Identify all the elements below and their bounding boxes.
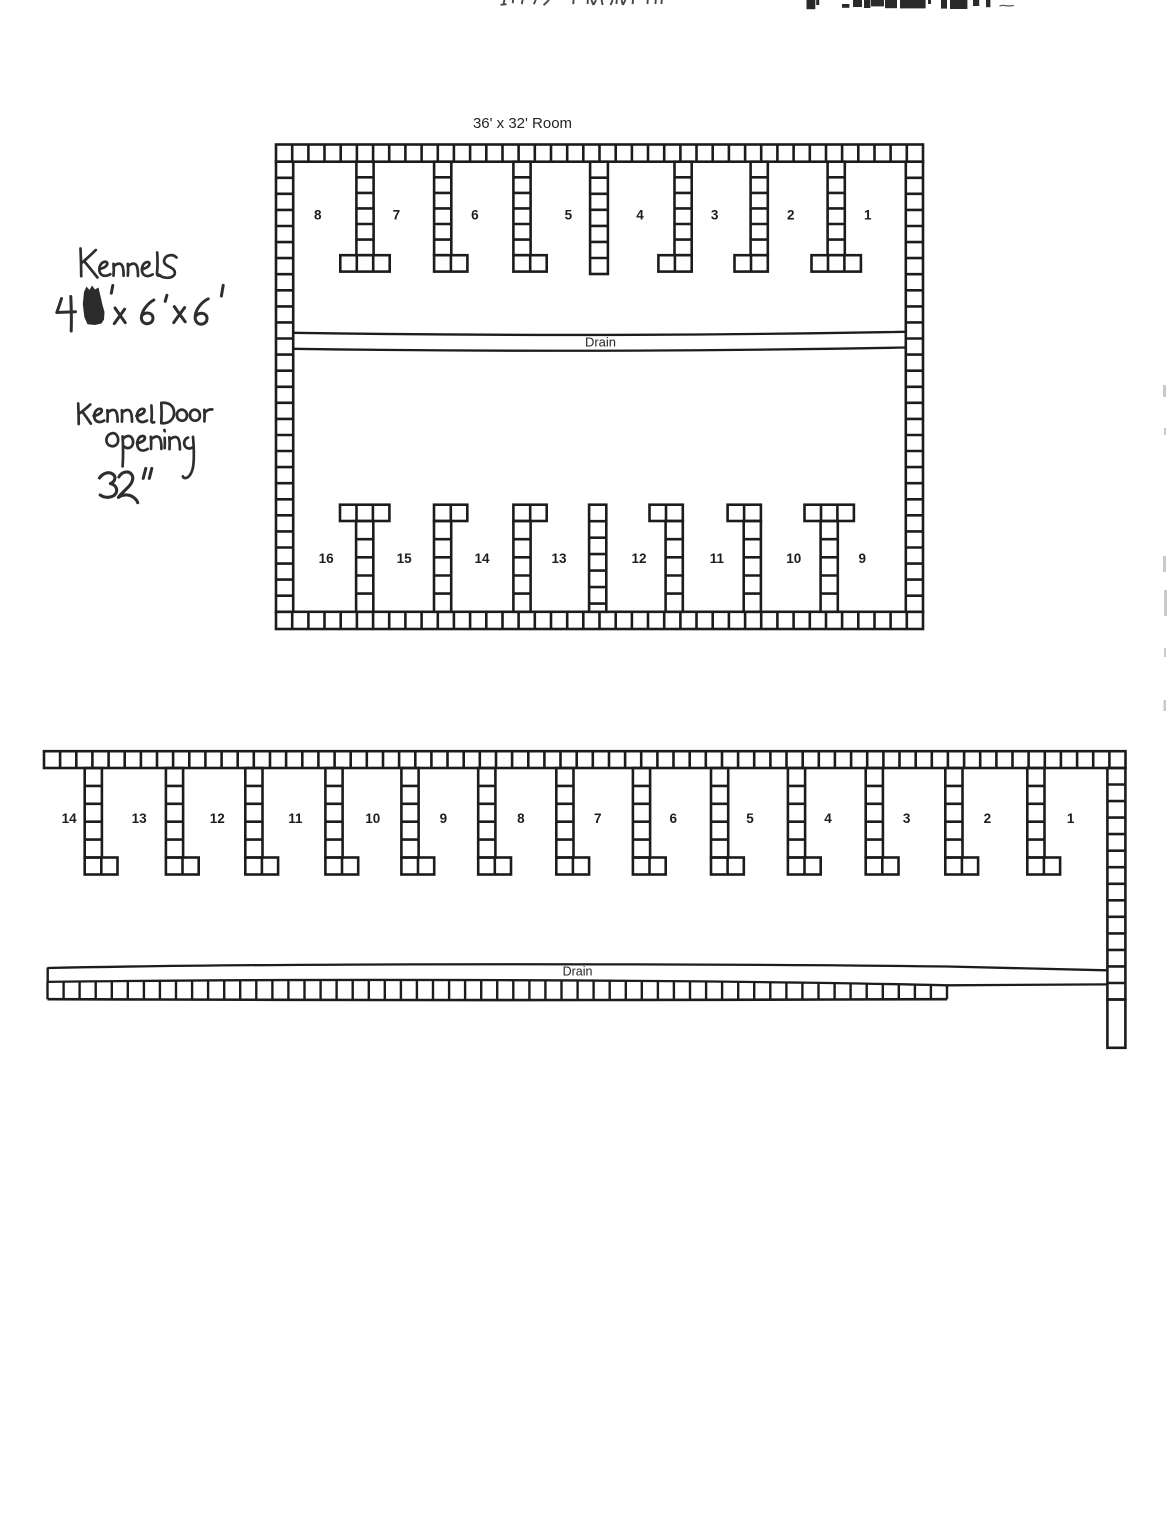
svg-text:6: 6 <box>471 208 479 223</box>
svg-text:1: 1 <box>864 208 872 223</box>
svg-text:36' x 32' Room: 36' x 32' Room <box>473 115 572 132</box>
svg-text:2: 2 <box>984 811 992 826</box>
svg-text:8: 8 <box>517 811 525 826</box>
svg-text:12: 12 <box>210 811 225 826</box>
svg-text:9: 9 <box>440 811 448 826</box>
svg-text:11: 11 <box>288 811 303 826</box>
svg-text:7: 7 <box>393 208 401 223</box>
svg-text:12: 12 <box>631 551 646 566</box>
svg-text:16: 16 <box>319 551 335 566</box>
svg-text:4: 4 <box>636 208 644 223</box>
svg-text:13: 13 <box>551 551 567 566</box>
svg-text:5: 5 <box>565 208 573 223</box>
svg-text:3: 3 <box>903 811 911 826</box>
svg-text:Drain: Drain <box>563 964 593 978</box>
svg-text:10: 10 <box>365 811 380 826</box>
svg-text:6: 6 <box>669 811 677 826</box>
svg-text:8: 8 <box>314 208 322 223</box>
svg-text:7: 7 <box>594 811 602 826</box>
svg-text:9: 9 <box>859 551 867 566</box>
svg-text:2: 2 <box>787 208 795 223</box>
svg-text:10: 10 <box>786 551 801 566</box>
svg-text:13: 13 <box>132 811 148 826</box>
svg-text:1: 1 <box>1067 811 1075 826</box>
svg-text:11: 11 <box>710 551 725 566</box>
svg-text:14: 14 <box>62 811 78 826</box>
svg-text:3: 3 <box>711 208 719 223</box>
svg-text:5: 5 <box>746 811 754 826</box>
svg-text:15: 15 <box>397 551 413 566</box>
svg-text:14: 14 <box>474 551 490 566</box>
svg-text:4: 4 <box>824 811 832 826</box>
svg-text:Drain: Drain <box>585 335 616 350</box>
